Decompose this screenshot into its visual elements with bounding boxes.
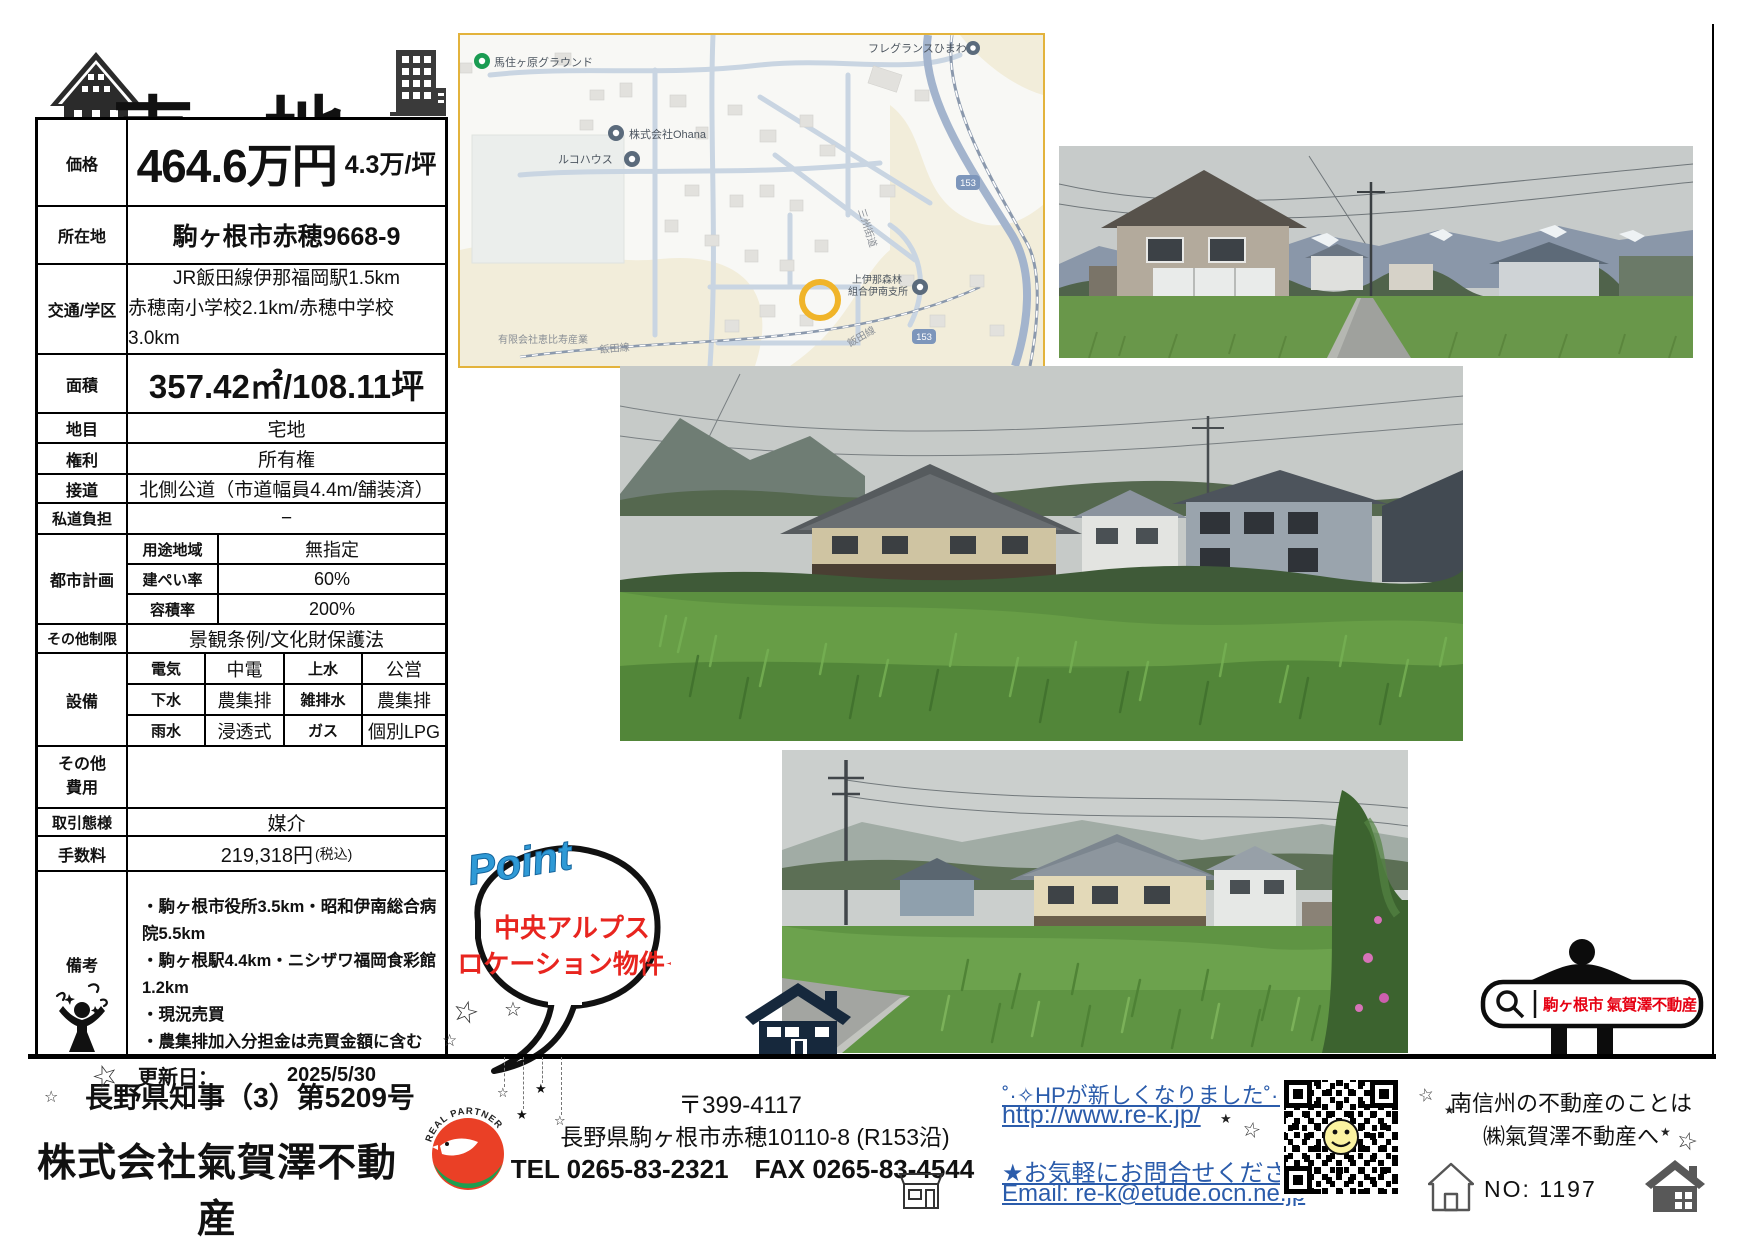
utilities-label: 設備 xyxy=(38,654,128,745)
company-name: 株式会社氣賀澤不動産 xyxy=(28,1132,406,1240)
email-link[interactable]: Email: re-k@etude.ocn.ne.jp xyxy=(1002,1180,1305,1208)
access-line2: 赤穂南小学校2.1km/赤穂中学校3.0km xyxy=(128,294,445,354)
access-label: 交通/学区 xyxy=(38,265,128,353)
photo-lot-near xyxy=(782,750,1408,1053)
land-category-value: 宅地 xyxy=(128,414,445,442)
road-row: 接道 北側公道（市道幅員4.4m/舗装済） xyxy=(38,473,445,502)
sewage-label: 下水 xyxy=(128,685,206,714)
remarks-row: 備考 xyxy=(38,870,445,1057)
coverage-label: 建ぺい率 xyxy=(128,565,219,593)
private-road-value: − xyxy=(128,504,445,533)
area-value: 357.42㎡/108.11坪 xyxy=(128,355,445,412)
fee-suffix: (税込) xyxy=(315,844,352,864)
house-outline-icon xyxy=(1428,1162,1474,1212)
coverage-value: 60% xyxy=(219,565,445,593)
land-category-label: 地目 xyxy=(38,414,128,442)
hanging-stars-decoration: ☆ ★ ★ ☆ xyxy=(495,1057,571,1115)
floor-ratio-label: 容積率 xyxy=(128,595,219,623)
remarks-line: ・現況売買 xyxy=(142,1002,445,1029)
star-decoration: ☆ xyxy=(1416,1084,1436,1105)
other-restrictions-value: 景観条例/文化財保護法 xyxy=(128,625,445,652)
remarks-line: ・駒ヶ根駅4.4km・ニシザワ福岡食彩館1.2km xyxy=(142,948,445,1002)
qr-code xyxy=(1280,1076,1402,1198)
price-label: 価格 xyxy=(38,120,128,205)
star-decoration: ★ xyxy=(1660,1126,1671,1138)
road-label: 接道 xyxy=(38,475,128,502)
rights-value: 所有権 xyxy=(128,444,445,473)
greywater-value: 農集排 xyxy=(363,685,445,714)
transaction-row: 取引態様 媒介 xyxy=(38,807,445,835)
point-line2: ロケーション物件✧ xyxy=(457,949,671,979)
water-label: 上水 xyxy=(285,654,363,683)
star-decoration: ★ xyxy=(1444,1104,1455,1116)
location-map: 馬住ヶ原グラウンド 株式会社Ohana ルコハウス フレグランスひまわり 上伊那… xyxy=(458,33,1045,368)
floor-ratio-value: 200% xyxy=(219,595,445,623)
other-costs-label1: その他 xyxy=(58,753,106,777)
utilities-row: 設備 電気 中電 上水 公営 下水 農集排 雑排水 農集排 雨水 浸透式 ガ xyxy=(38,652,445,745)
property-number: NO: 1197 xyxy=(1484,1176,1597,1203)
rights-row: 権利 所有権 xyxy=(38,442,445,473)
star-decoration: ☆ xyxy=(1673,1127,1700,1156)
price-row: 価格 464.6万円 4.3万/坪 xyxy=(38,120,445,205)
fee-row: 手数料 219,318円 (税込) xyxy=(38,835,445,870)
remarks-label: 備考 xyxy=(66,952,98,976)
fee-value: 219,318円 xyxy=(221,839,313,868)
smiley-icon xyxy=(1324,1120,1358,1154)
land-category-row: 地目 宅地 xyxy=(38,412,445,442)
map-label-ruko-house: ルコハウス xyxy=(558,153,613,166)
star-decoration: ☆ xyxy=(442,1032,457,1049)
rights-label: 権利 xyxy=(38,444,128,473)
other-restrictions-label: その他制限 xyxy=(38,625,128,652)
point-line1: 中央アルプス xyxy=(494,913,650,943)
area-row: 面積 357.42㎡/108.11坪 xyxy=(38,353,445,412)
access-row: 交通/学区 JR飯田線伊那福岡駅1.5km 赤穂南小学校2.1km/赤穂中学校3… xyxy=(38,263,445,353)
city-planning-label: 都市計画 xyxy=(38,535,128,623)
company-address: 長野県駒ヶ根市赤穂10110-8 (R153沿) xyxy=(545,1118,965,1152)
electric-label: 電気 xyxy=(128,654,206,683)
fee-label: 手数料 xyxy=(38,837,128,870)
greywater-label: 雑排水 xyxy=(285,685,363,714)
zoning-value: 無指定 xyxy=(219,535,445,563)
other-costs-row: その他 費用 xyxy=(38,745,445,807)
page-frame-line xyxy=(1712,24,1714,1057)
location-label: 所在地 xyxy=(38,207,128,263)
celebration-person-icon xyxy=(49,980,115,1057)
road-value: 北側公道（市道幅員4.4m/舗装済） xyxy=(128,475,445,502)
other-costs-value xyxy=(128,747,445,807)
postal-code: 〒399-4117 xyxy=(565,1085,915,1120)
map-label-ebisu: 有限会社恵比寿産業 xyxy=(498,333,588,346)
map-label-ohana: 株式会社Ohana xyxy=(629,127,707,141)
map-label-forest-union: 上伊那森林 xyxy=(852,273,902,286)
rainwater-label: 雨水 xyxy=(128,716,206,745)
sewage-value: 農集排 xyxy=(206,685,285,714)
svg-text:153: 153 xyxy=(916,332,932,343)
section-divider xyxy=(28,1054,1716,1059)
shop-icon xyxy=(898,1170,944,1212)
star-decoration: ☆ xyxy=(504,1000,522,1020)
other-costs-label2: 費用 xyxy=(66,777,98,801)
map-label-fragrance: フレグランスひまわり xyxy=(868,41,978,55)
gas-label: ガス xyxy=(285,716,363,745)
star-decoration: ☆ xyxy=(44,1090,58,1106)
private-road-label: 私道負担 xyxy=(38,504,128,533)
property-spec-table: 価格 464.6万円 4.3万/坪 所在地 駒ヶ根市赤穂9668-9 交通/学区… xyxy=(35,117,448,1057)
map-label-forest-union: 組合伊南支所 xyxy=(848,285,908,298)
remarks-line: ・農集排加入分担金は売買金額に含む xyxy=(142,1029,445,1056)
star-decoration: ☆ xyxy=(1240,1118,1263,1142)
remarks-line: ・駒ヶ根市役所3.5km・昭和伊南総合病院5.5km xyxy=(142,894,445,948)
location-row: 所在地 駒ヶ根市赤穂9668-9 xyxy=(38,205,445,263)
price-per-tsubo: 4.3万/坪 xyxy=(345,145,437,181)
rainwater-value: 浸透式 xyxy=(206,716,285,745)
flyer-page: 売地 価格 464.6万円 4.3万/坪 所在地 駒ヶ根市赤穂96 xyxy=(0,0,1754,1240)
area-note-line1: 南信州の不動産のことは xyxy=(1440,1086,1702,1118)
price-value: 464.6万円 xyxy=(137,130,337,196)
electric-value: 中電 xyxy=(206,654,285,683)
house-filled-icon xyxy=(1645,1160,1705,1212)
location-value: 駒ヶ根市赤穂9668-9 xyxy=(128,207,445,263)
access-line1: JR飯田線伊那福岡駅1.5km xyxy=(173,264,400,294)
zoning-label: 用途地域 xyxy=(128,535,219,563)
search-query-text: 駒ヶ根市 氣賀澤不動産 xyxy=(1543,995,1697,1014)
map-label-ground: 馬住ヶ原グラウンド xyxy=(494,55,593,69)
star-decoration: ★ xyxy=(1220,1112,1232,1125)
other-restrictions-row: その他制限 景観条例/文化財保護法 xyxy=(38,623,445,652)
house-icon xyxy=(745,983,851,1059)
transaction-label: 取引態様 xyxy=(38,809,128,835)
photo-lot-wide xyxy=(620,366,1463,741)
water-value: 公営 xyxy=(363,654,445,683)
area-label: 面積 xyxy=(38,355,128,412)
homepage-link[interactable]: http://www.re-k.jp/ xyxy=(1002,1101,1201,1130)
city-planning-row: 都市計画 用途地域 無指定 建ぺい率 60% 容積率 200% xyxy=(38,533,445,623)
search-banner: 駒ヶ根市 氣賀澤不動産 xyxy=(1455,938,1707,1058)
gas-value: 個別LPG xyxy=(363,716,445,745)
private-road-row: 私道負担 − xyxy=(38,502,445,533)
building-icon xyxy=(388,48,448,125)
transaction-value: 媒介 xyxy=(128,809,445,835)
svg-text:153: 153 xyxy=(960,178,976,189)
photo-street-view xyxy=(1059,146,1693,358)
